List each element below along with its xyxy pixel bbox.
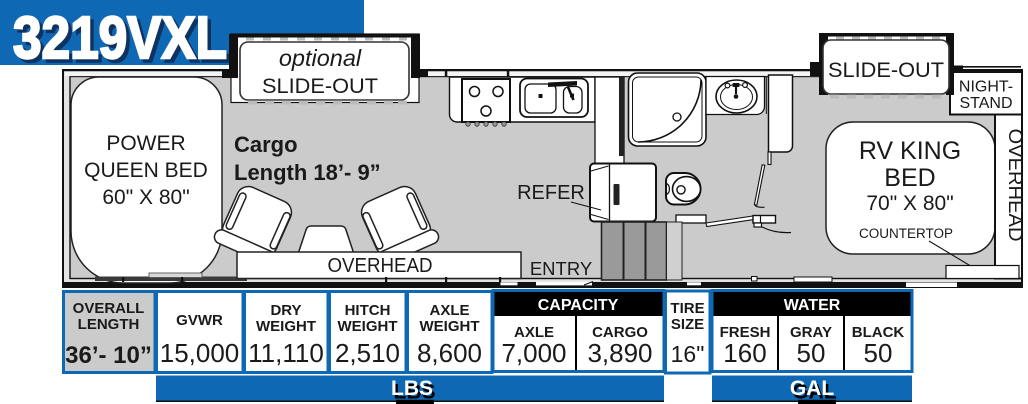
svg-text:DRY: DRY	[270, 302, 301, 319]
svg-text:WATER: WATER	[784, 297, 841, 314]
svg-text:optional: optional	[279, 45, 362, 71]
svg-text:OVERHEAD: OVERHEAD	[328, 255, 433, 277]
svg-text:3219VXL: 3219VXL	[13, 5, 227, 71]
svg-text:SLIDE-OUT: SLIDE-OUT	[828, 59, 944, 82]
svg-text:15,000: 15,000	[160, 338, 240, 368]
svg-text:CAPACITY: CAPACITY	[538, 297, 619, 314]
svg-text:POWER: POWER	[106, 132, 185, 155]
svg-text:COUNTERTOP: COUNTERTOP	[859, 226, 953, 241]
svg-text:2,510: 2,510	[335, 338, 400, 368]
svg-text:36’- 10”: 36’- 10”	[65, 342, 152, 369]
svg-text:WEIGHT: WEIGHT	[420, 318, 480, 335]
svg-text:50: 50	[797, 338, 826, 368]
svg-text:OVERALL: OVERALL	[73, 300, 145, 317]
svg-text:BED: BED	[884, 164, 935, 192]
svg-text:SIZE: SIZE	[671, 316, 704, 333]
svg-text:ENTRY: ENTRY	[530, 258, 592, 279]
svg-text:GVWR: GVWR	[176, 312, 223, 329]
svg-text:REFER: REFER	[517, 182, 585, 204]
svg-text:WEIGHT: WEIGHT	[338, 318, 398, 335]
svg-text:160: 160	[723, 338, 766, 368]
svg-text:60" X 80": 60" X 80"	[102, 186, 189, 209]
svg-text:8,600: 8,600	[417, 338, 482, 368]
svg-text:QUEEN BED: QUEEN BED	[84, 159, 208, 182]
svg-text:7,000: 7,000	[501, 338, 566, 368]
svg-text:AXLE: AXLE	[429, 302, 469, 319]
svg-text:3,890: 3,890	[587, 338, 652, 368]
svg-text:11,110: 11,110	[248, 338, 324, 368]
svg-text:LBS: LBS	[391, 377, 433, 400]
svg-text:LENGTH: LENGTH	[78, 316, 140, 333]
svg-text:Cargo: Cargo	[234, 132, 298, 157]
svg-text:16": 16"	[671, 341, 705, 367]
svg-text:Length 18’- 9”: Length 18’- 9”	[234, 160, 381, 185]
svg-text:STAND: STAND	[959, 95, 1012, 112]
svg-text:OVERHEAD: OVERHEAD	[1004, 129, 1025, 242]
svg-text:HITCH: HITCH	[345, 302, 391, 319]
svg-text:TIRE: TIRE	[670, 300, 704, 317]
svg-text:GAL: GAL	[790, 377, 835, 400]
svg-text:SLIDE-OUT: SLIDE-OUT	[262, 75, 378, 98]
svg-text:70" X 80": 70" X 80"	[866, 192, 953, 215]
svg-text:50: 50	[864, 338, 893, 368]
svg-text:WEIGHT: WEIGHT	[256, 318, 316, 335]
svg-text:RV KING: RV KING	[859, 137, 961, 165]
svg-text:NIGHT-: NIGHT-	[959, 79, 1013, 96]
